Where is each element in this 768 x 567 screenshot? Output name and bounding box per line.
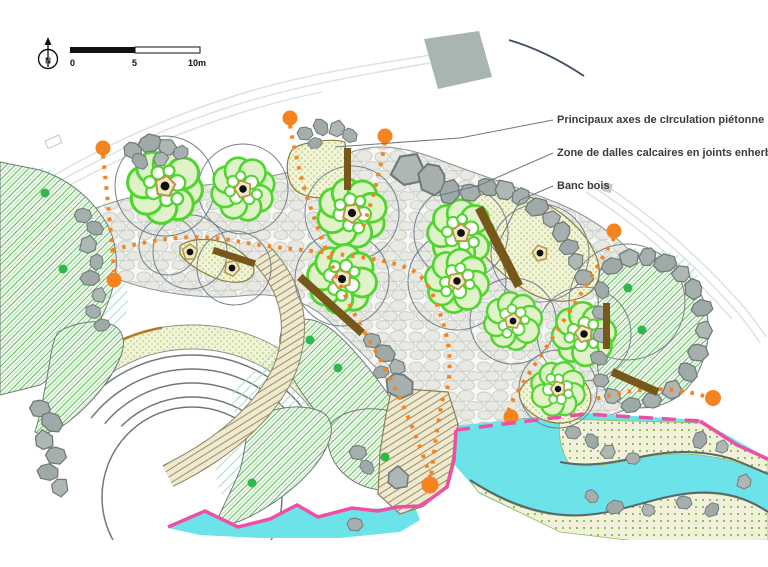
scale-tick-10m: 10m (188, 58, 206, 68)
scale-tick-0: 0 (70, 58, 75, 68)
landscape-plan: Principaux axes de cIrculation piétonne … (0, 0, 768, 567)
north-arrow-icon: N (39, 37, 58, 69)
annotation-wood-bench: Banc bois (557, 180, 610, 192)
road-marker (45, 135, 62, 148)
scale-bar: 0 5 10m (70, 47, 206, 68)
wooden-bench (603, 303, 610, 349)
scale-tick-5: 5 (132, 58, 137, 68)
annotations: Principaux axes de cIrculation piétonne … (557, 114, 768, 192)
path-node (607, 224, 622, 239)
annotation-pedestrian-axes: Principaux axes de cIrculation piétonne (557, 114, 764, 126)
north-letter: N (45, 57, 51, 66)
wall-line (509, 40, 584, 76)
path-node (705, 390, 721, 406)
building-footprint (424, 31, 492, 89)
path-node (107, 273, 122, 288)
path-node (422, 477, 439, 494)
path-node (96, 141, 111, 156)
wood-deck (378, 388, 458, 514)
wooden-bench (344, 148, 351, 190)
annotation-limestone-zone: Zone de dalles calcaires en joints enher… (557, 147, 768, 159)
path-node (283, 111, 298, 126)
path-node (378, 129, 393, 144)
